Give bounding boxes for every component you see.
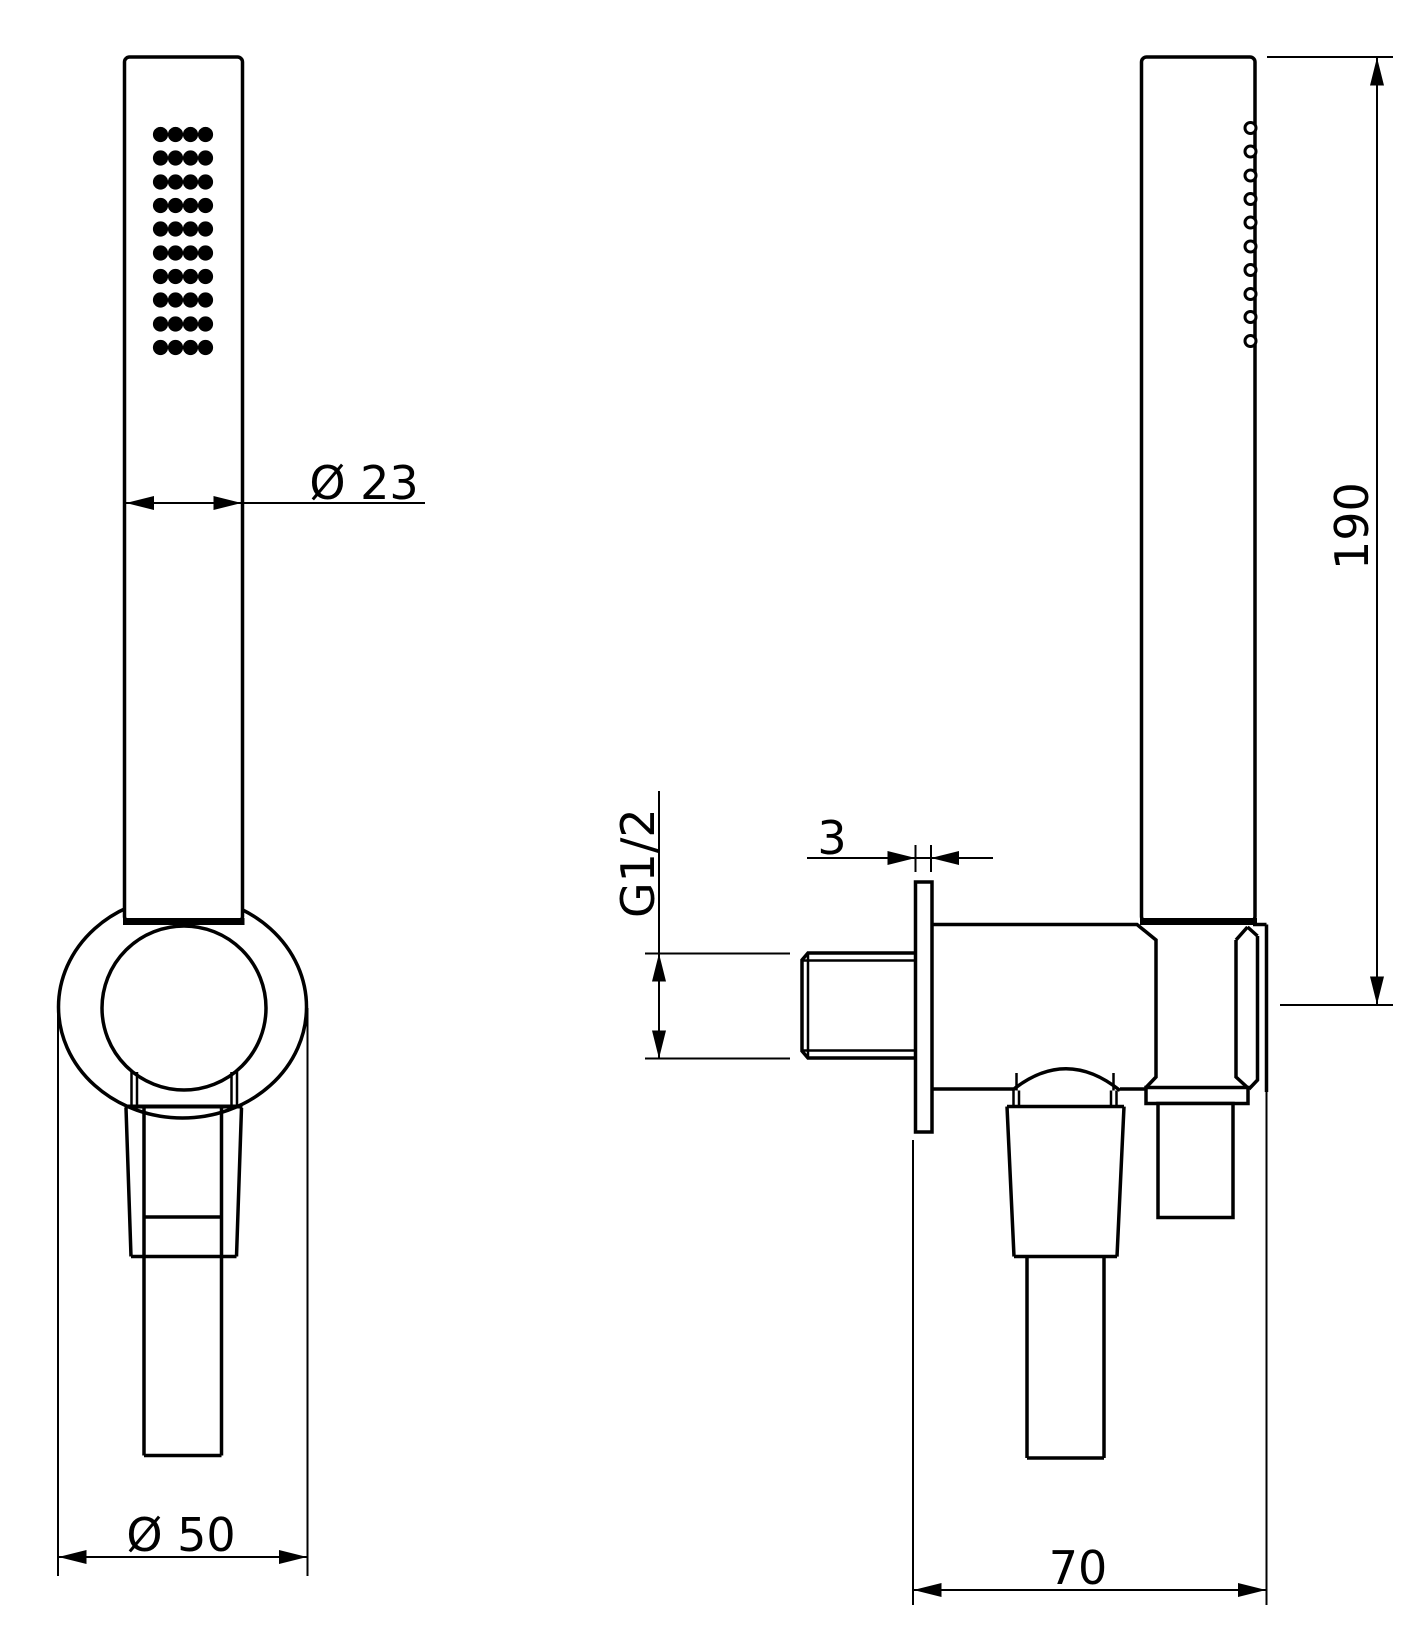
- grip-right-edge: [1236, 927, 1248, 1088]
- technical-drawing-page: Ø 23 Ø 50: [0, 0, 1413, 1650]
- dim-label-depth: 70: [1049, 1541, 1108, 1595]
- shower-wand-front: [125, 57, 243, 922]
- shower-wand-side: [1142, 57, 1256, 922]
- shower-set-technical-drawing: Ø 23 Ø 50: [0, 0, 1413, 1650]
- dim-thread-size: G1/2: [611, 791, 790, 1059]
- dim-label-plate-thickness: 3: [817, 811, 846, 865]
- side-view: 3 G1/2 190 70: [611, 57, 1393, 1605]
- arrow-down-icon: [1370, 977, 1384, 1005]
- outlet-dome: [1012, 1069, 1120, 1107]
- nipple-outline: [802, 953, 916, 1058]
- nipple-thread-lines: [802, 953, 916, 1058]
- arrow-right-icon: [1238, 1583, 1266, 1597]
- dome-arc: [1012, 1069, 1120, 1091]
- dim-plate-thickness: 3: [807, 811, 993, 872]
- bracket-body-side: [932, 925, 1267, 1093]
- dome-neck-lines: [1014, 1091, 1117, 1107]
- extension-lines: [645, 954, 790, 1059]
- dim-label-thread-size: G1/2: [611, 808, 665, 918]
- arrow-right-icon: [888, 851, 916, 865]
- dim-label-height: 190: [1325, 482, 1379, 570]
- arrow-right-icon: [279, 1550, 307, 1564]
- bracket-ring-side-profile: [1248, 925, 1267, 1093]
- arrow-left-icon: [59, 1550, 87, 1564]
- arrow-up-icon: [1370, 58, 1384, 86]
- wand-hose-nut: [1146, 1088, 1248, 1104]
- dim-label-bracket-diameter: Ø 50: [126, 1508, 235, 1562]
- wand-hose-tube: [1158, 1104, 1233, 1218]
- bracket-inner-ring: [102, 926, 266, 1090]
- dim-label-head-diameter: Ø 23: [309, 456, 418, 510]
- dim-height: 190: [1267, 57, 1393, 1005]
- arrow-left-icon: [931, 851, 959, 865]
- wall-plate-side: [916, 882, 933, 1132]
- hose-connector-front: [144, 1108, 222, 1456]
- dim-bracket-diameter: Ø 50: [58, 1008, 308, 1576]
- outlet-cone-side: [1007, 1107, 1124, 1257]
- outlet-hose-side: [1027, 1257, 1104, 1459]
- extension-lines: [58, 1008, 308, 1576]
- arrow-left-icon: [914, 1583, 942, 1597]
- arrow-up-icon: [652, 954, 666, 982]
- arrow-down-icon: [652, 1031, 666, 1059]
- front-view: Ø 23 Ø 50: [58, 57, 425, 1576]
- thread-nipple: [802, 953, 916, 1058]
- body-top-left: [932, 925, 1156, 1088]
